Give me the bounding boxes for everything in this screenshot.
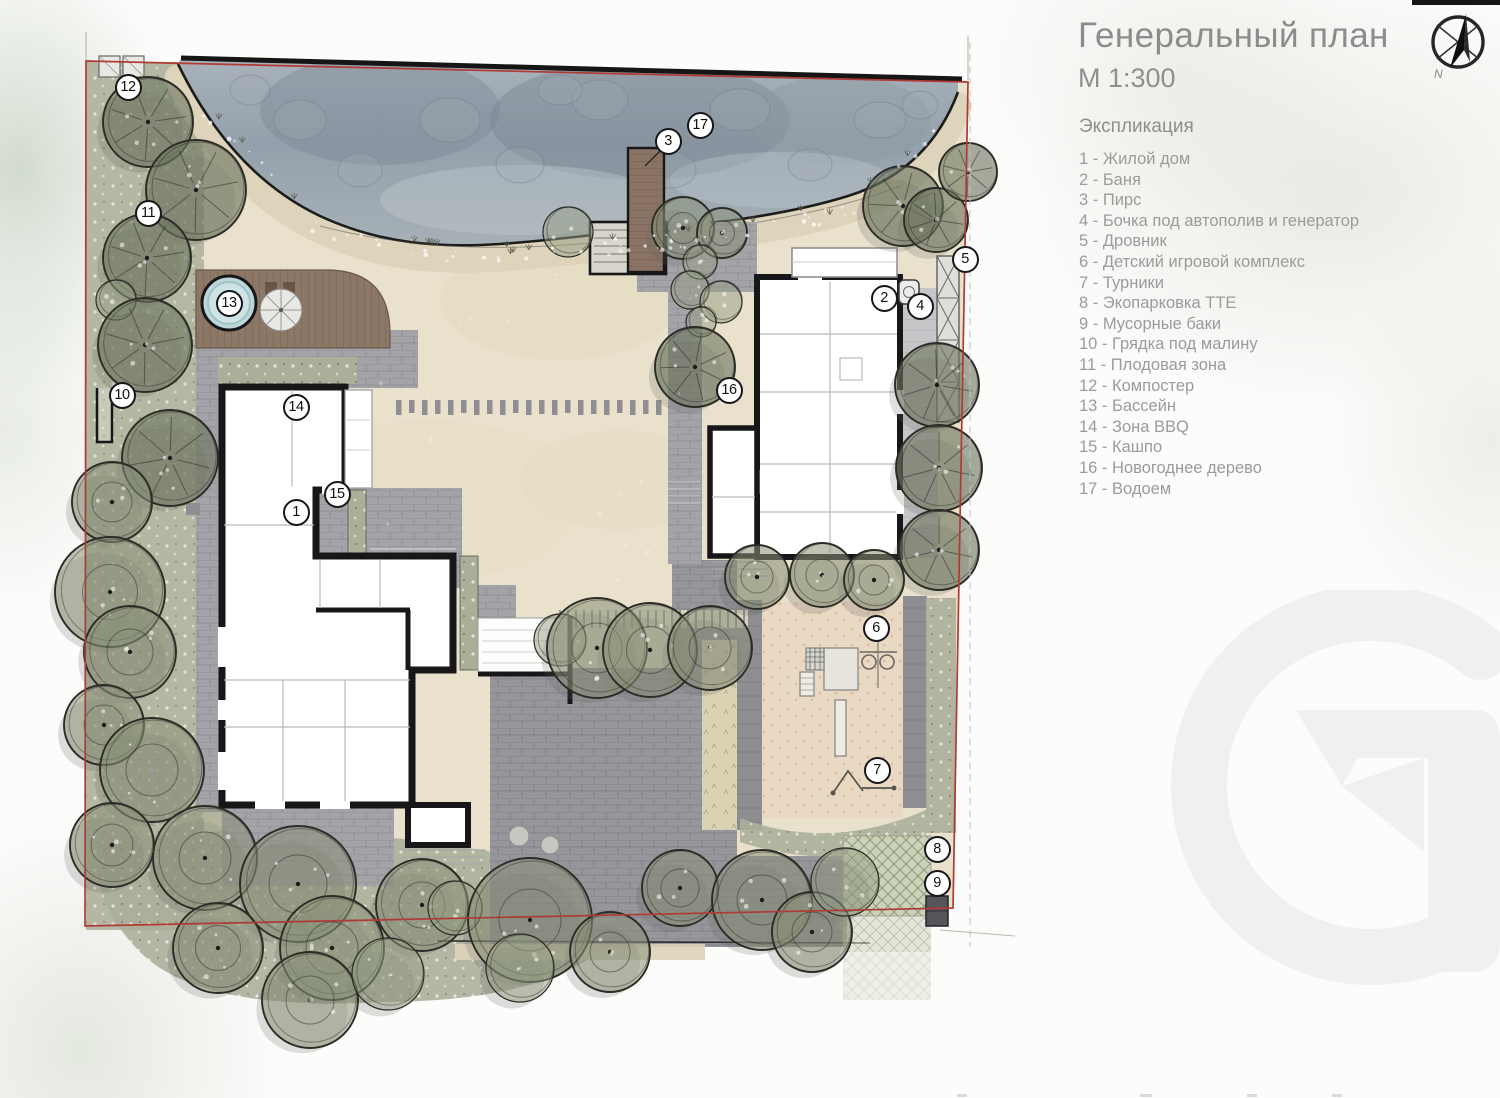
- tree: [725, 545, 789, 609]
- legend-item: 5 - Дровник: [1079, 231, 1359, 252]
- tree: [262, 952, 358, 1048]
- plan-marker-12: 12: [115, 74, 142, 101]
- compass-n-label: N: [1434, 67, 1443, 81]
- plan-scale: М 1:300: [1078, 63, 1389, 94]
- legend-item: 1 - Жилой дом: [1079, 149, 1359, 170]
- legend: Экспликация 1 - Жилой дом2 - Баня3 - Пир…: [1079, 116, 1359, 499]
- plan-marker-2: 2: [871, 285, 898, 312]
- legend-item: 16 - Новогоднее дерево: [1079, 458, 1359, 479]
- legend-item: 11 - Плодовая зона: [1079, 355, 1359, 376]
- shrub: [811, 848, 879, 916]
- plan-marker-3: 3: [655, 128, 682, 155]
- shrub: [543, 207, 593, 257]
- title-block: Генеральный план М 1:300: [1078, 16, 1389, 94]
- legend-item: 10 - Грядка под малину: [1079, 334, 1359, 355]
- plan-marker-13: 13: [216, 290, 243, 317]
- plan-marker-8: 8: [924, 836, 951, 863]
- tree: [173, 903, 263, 993]
- tree: [98, 298, 192, 392]
- plan-title: Генеральный план: [1078, 16, 1389, 56]
- legend-item: 13 - Бассейн: [1079, 396, 1359, 417]
- bottom-crop-mark: [1247, 1094, 1257, 1097]
- bottom-crop-mark: [1332, 1094, 1342, 1097]
- tree: [939, 143, 997, 201]
- house-side-porch: [345, 390, 372, 488]
- plan-marker-9: 9: [924, 870, 951, 897]
- watermark-logo: [1128, 590, 1500, 1025]
- plan-marker-5: 5: [952, 246, 979, 273]
- plan-marker-4: 4: [907, 293, 934, 320]
- legend-item: 15 - Кашпо: [1079, 437, 1359, 458]
- shrub: [352, 938, 424, 1010]
- tree: [899, 510, 979, 590]
- plan-marker-17: 17: [687, 112, 714, 139]
- legend-item: 6 - Детский игровой комплекс: [1079, 252, 1359, 273]
- plan-marker-15: 15: [324, 481, 351, 508]
- plan-marker-16: 16: [716, 377, 743, 404]
- legend-item: 9 - Мусорные баки: [1079, 314, 1359, 335]
- stepping-stone-path: [396, 400, 662, 415]
- plan-marker-14: 14: [283, 394, 310, 421]
- north-compass-icon: N: [1424, 6, 1492, 84]
- plan-marker-10: 10: [109, 382, 136, 409]
- tree: [70, 803, 154, 887]
- plan-marker-1: 1: [283, 499, 310, 526]
- legend-item: 3 - Пирс: [1079, 190, 1359, 211]
- bottom-crop-mark: [957, 1094, 967, 1097]
- plan-marker-6: 6: [863, 615, 890, 642]
- legend-item: 17 - Водоем: [1079, 479, 1359, 500]
- shrub: [486, 934, 554, 1002]
- legend-item: 2 - Баня: [1079, 170, 1359, 191]
- plan-marker-11: 11: [135, 200, 162, 227]
- sheet-corner-strip: [1412, 0, 1500, 5]
- bathhouse-annex: [710, 428, 757, 556]
- legend-item: 14 - Зона BBQ: [1079, 417, 1359, 438]
- legend-list: 1 - Жилой дом2 - Баня3 - Пирс4 - Бочка п…: [1079, 149, 1359, 499]
- umbrella: [260, 289, 302, 331]
- tree: [570, 912, 650, 992]
- tree: [668, 606, 752, 690]
- legend-item: 4 - Бочка под автополив и генератор: [1079, 211, 1359, 232]
- plan-marker-7: 7: [864, 757, 891, 784]
- legend-item: 12 - Компостер: [1079, 376, 1359, 397]
- legend-item: 8 - Экопарковка ТТЕ: [1079, 293, 1359, 314]
- tree: [72, 462, 152, 542]
- sheet: 1234567891011121314151617 Генеральный пл…: [0, 0, 1500, 1098]
- tree: [84, 606, 176, 698]
- tree: [895, 343, 979, 427]
- tree: [896, 425, 982, 511]
- watermark-arrow: [1342, 758, 1424, 852]
- legend-item: 7 - Турники: [1079, 273, 1359, 294]
- trash-bins: [926, 896, 948, 926]
- bottom-crop-mark: [1140, 1094, 1152, 1097]
- tree: [844, 550, 904, 610]
- legend-heading: Экспликация: [1079, 116, 1359, 138]
